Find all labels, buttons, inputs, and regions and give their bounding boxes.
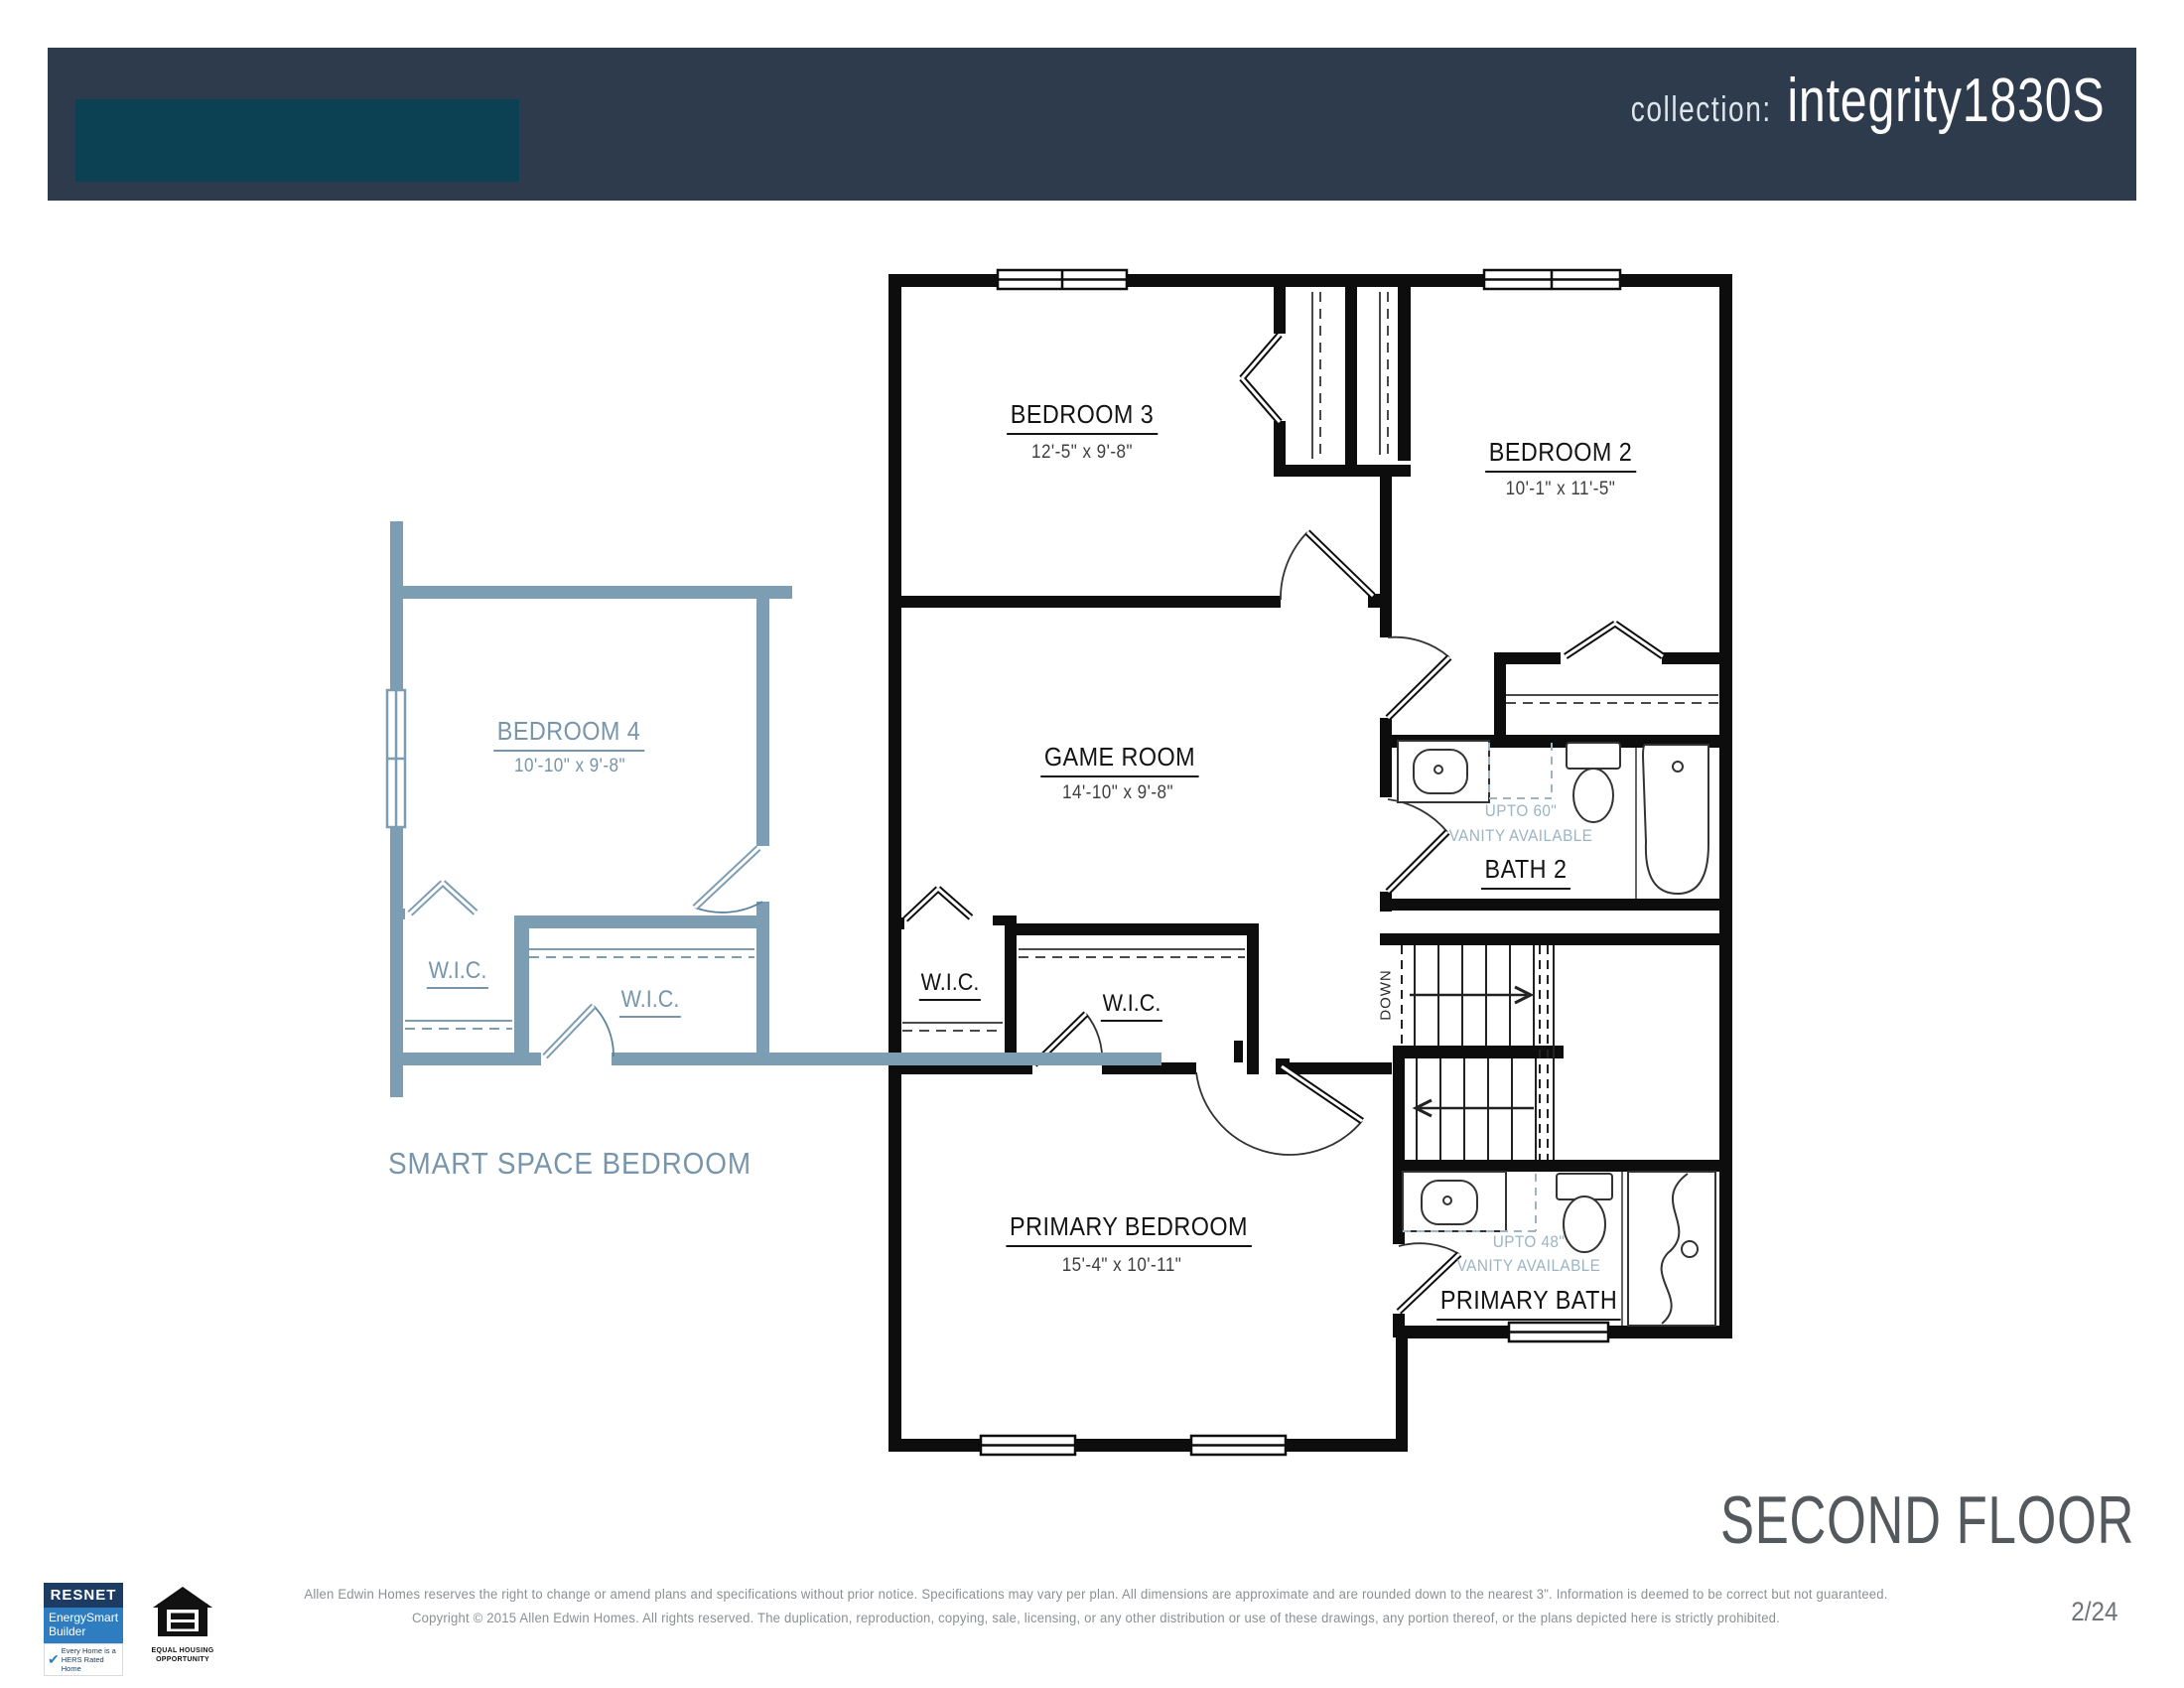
game-room-dims: 14'-10" x 9'-8"	[1062, 782, 1173, 804]
primary-bath-vanity-note-1: UPTO 48"	[1493, 1232, 1566, 1252]
floor-title: SECOND FLOOR	[1720, 1481, 2134, 1559]
bath2-vanity-note-1: UPTO 60"	[1485, 801, 1558, 821]
smart-wic-right-label: W.I.C.	[619, 986, 681, 1018]
bedroom4-dims: 10'-10" x 9'-8"	[514, 756, 625, 777]
primary-bedroom-dims: 15'-4" x 10'-11"	[1062, 1255, 1182, 1277]
equal-housing-logo: EQUAL HOUSING OPPORTUNITY	[147, 1587, 218, 1665]
smart-plan-window	[387, 690, 405, 827]
stairs-down-label: DOWN	[1378, 969, 1395, 1021]
bedroom4-label: BEDROOM 4	[493, 716, 644, 752]
smart-wic-left-label: W.I.C.	[427, 957, 488, 989]
primary-bath-label: PRIMARY BATH	[1436, 1285, 1621, 1321]
disclaimer-line-1: Allen Edwin Homes reserves the right to …	[304, 1587, 1887, 1602]
bath2-label: BATH 2	[1481, 854, 1570, 890]
wic-left-label: W.I.C.	[919, 969, 981, 1001]
primary-bedroom-label: PRIMARY BEDROOM	[1006, 1211, 1251, 1247]
resnet-subtitle: EnergySmart Builder	[44, 1608, 123, 1643]
bath2-vanity-note-2: VANITY AVAILABLE	[1449, 826, 1593, 846]
smart-plan-doors	[410, 848, 762, 1056]
bedroom3-dims: 12'-5" x 9'-8"	[1031, 442, 1133, 464]
resnet-tagline: ✔ Every Home is a HERS Rated Home	[44, 1643, 123, 1676]
equal-housing-text: EQUAL HOUSING OPPORTUNITY	[147, 1647, 218, 1665]
wic-center-label: W.I.C.	[1101, 990, 1162, 1022]
bedroom2-dims: 10'-1" x 11'-5"	[1506, 479, 1616, 500]
game-room-label: GAME ROOM	[1040, 742, 1198, 777]
page-number: 2/24	[2072, 1597, 2118, 1627]
bedroom2-label: BEDROOM 2	[1485, 437, 1636, 473]
resnet-logo: RESNET EnergySmart Builder ✔ Every Home …	[44, 1583, 123, 1676]
resnet-title: RESNET	[44, 1583, 123, 1608]
bedroom3-label: BEDROOM 3	[1007, 399, 1158, 435]
floor-plan-page: collection: integrity1830S	[0, 0, 2184, 1688]
check-icon: ✔	[48, 1651, 60, 1668]
smart-space-title: SMART SPACE BEDROOM	[383, 1146, 757, 1182]
equal-housing-house-icon	[153, 1587, 212, 1640]
primary-bath-vanity-note-2: VANITY AVAILABLE	[1457, 1256, 1601, 1276]
disclaimer-line-2: Copyright © 2015 Allen Edwin Homes. All …	[412, 1611, 1780, 1625]
floor-plan-drawing	[0, 0, 2184, 1688]
